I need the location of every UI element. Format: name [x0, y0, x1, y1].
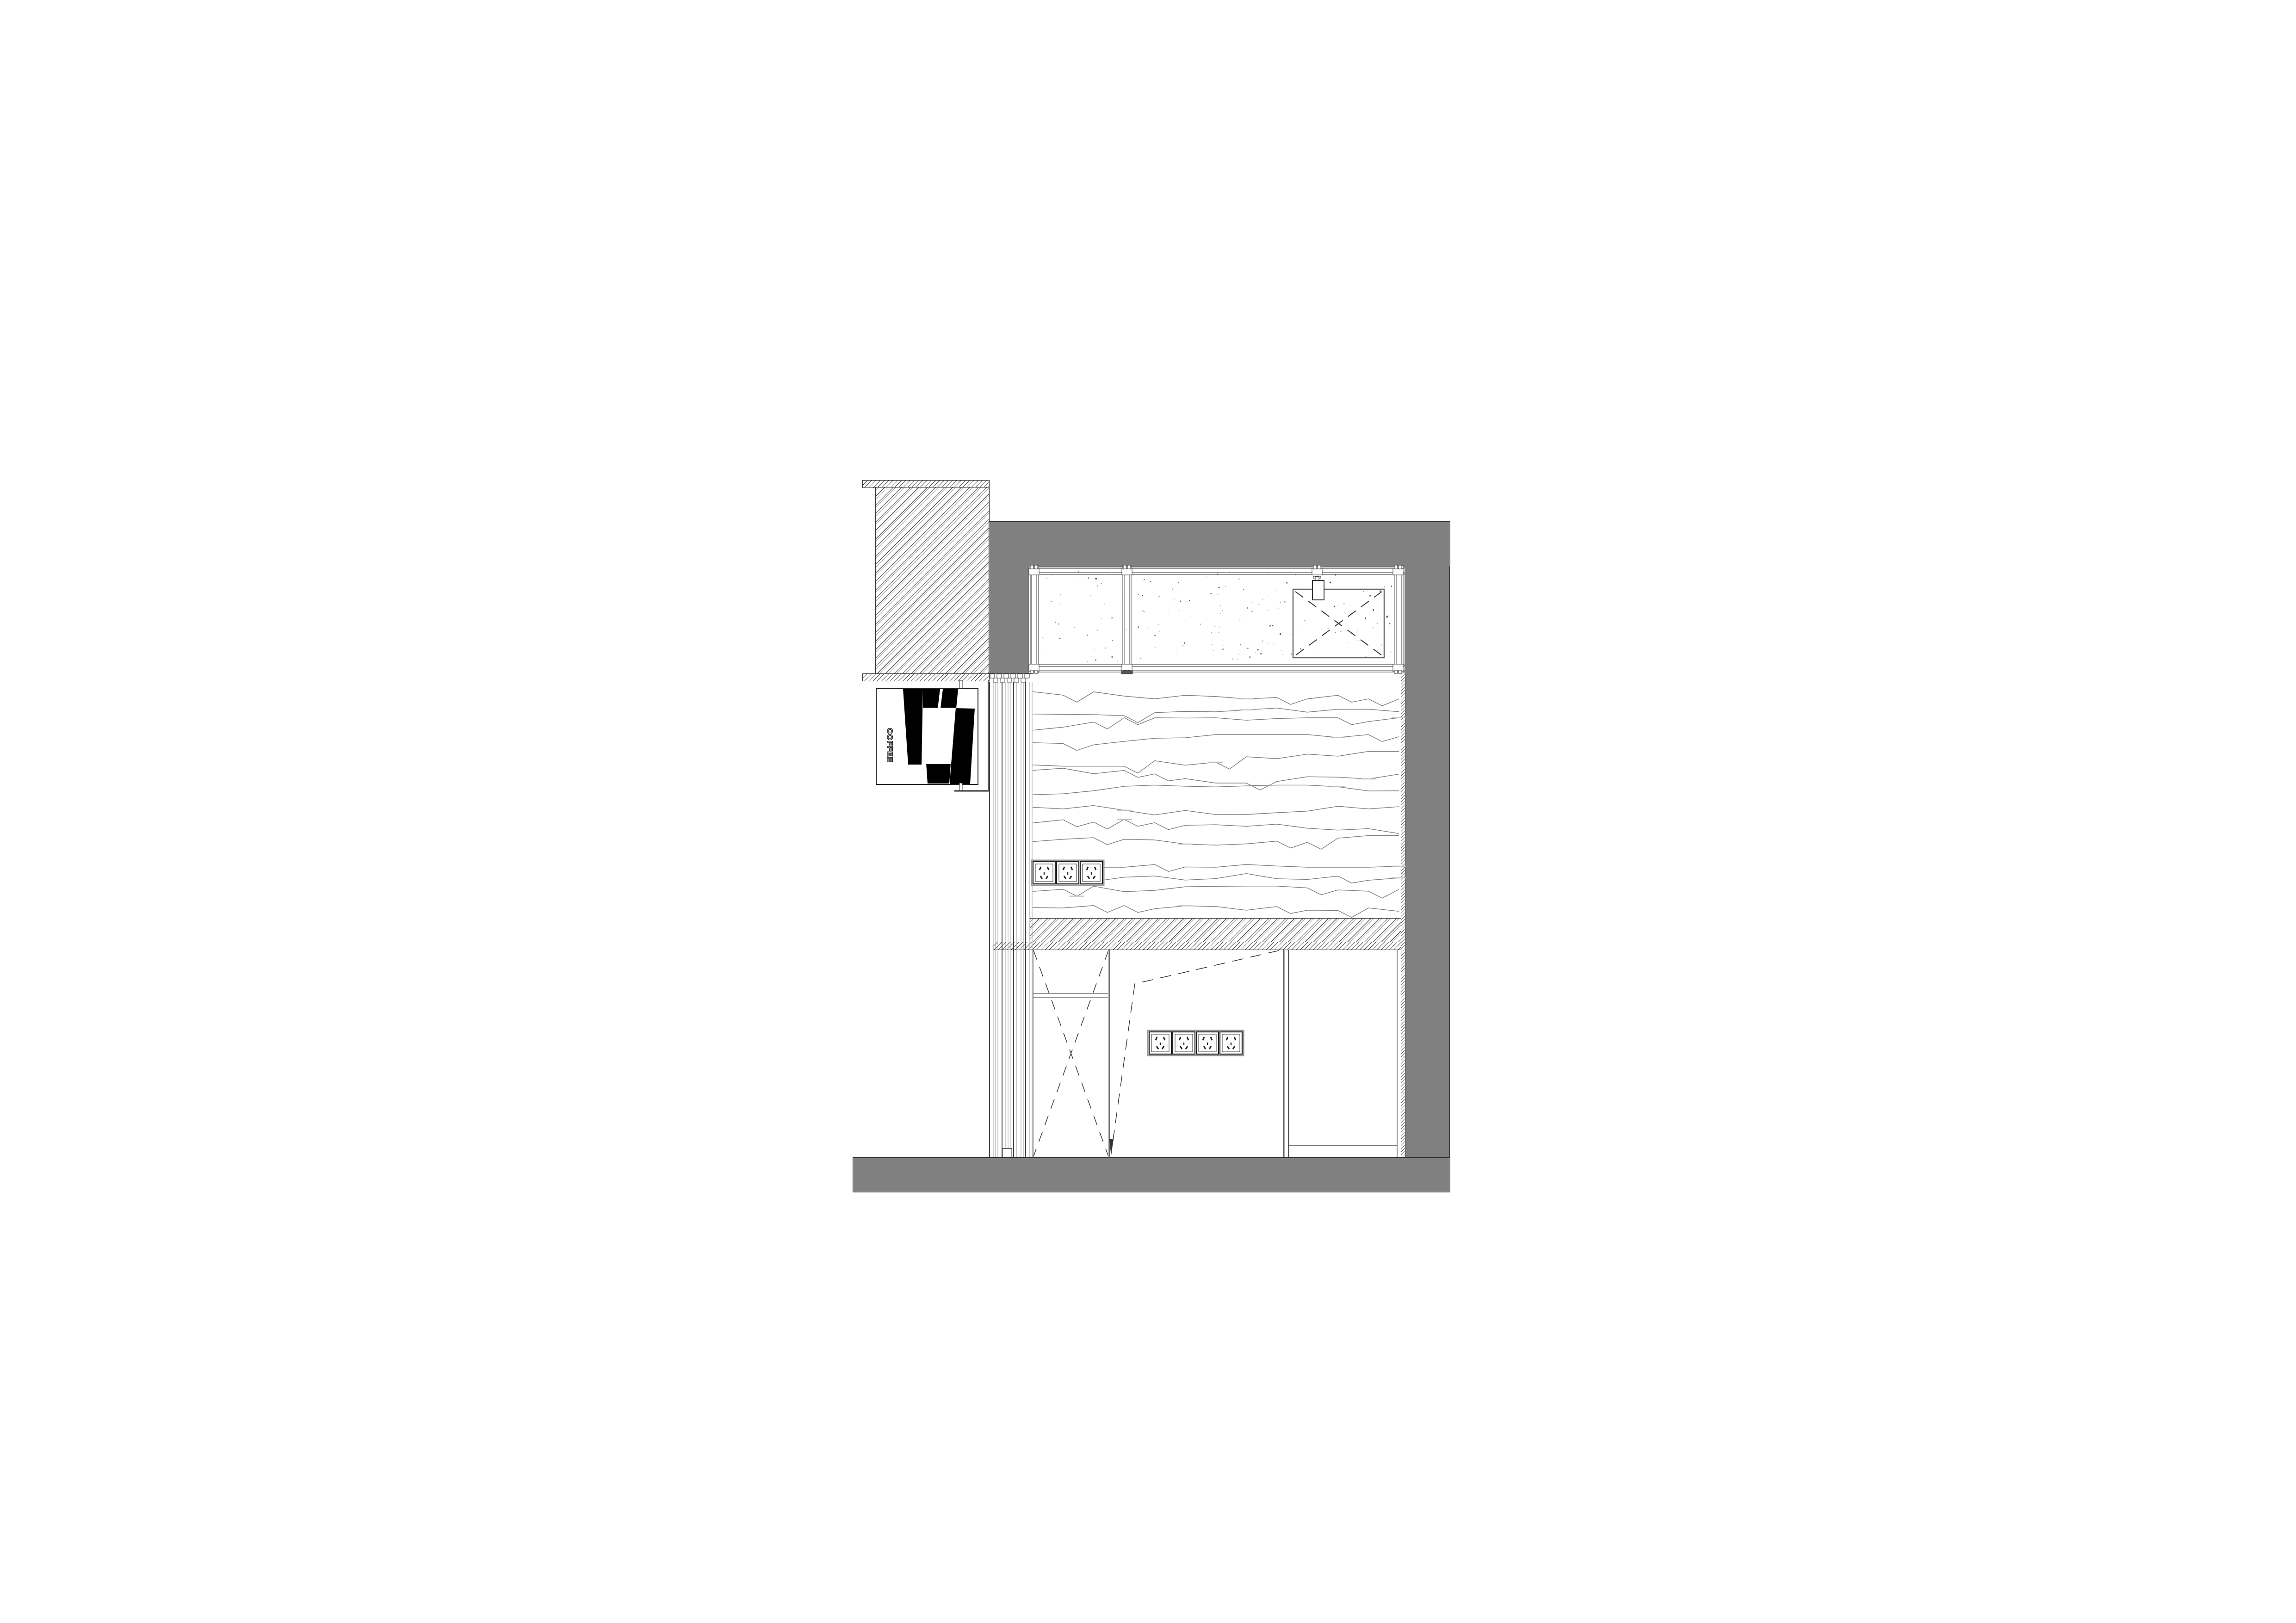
glass-speckle-texture: [1042, 570, 1392, 662]
transom-window: [1029, 565, 1404, 674]
linework-overlay: [0, 0, 2296, 1623]
counter-substrate-hatched: [993, 942, 1401, 950]
right-wall-section: [1405, 566, 1450, 1157]
concrete-beam: [989, 521, 1450, 567]
coffee-signboard: COFFEE: [876, 688, 978, 785]
slat-column: [990, 673, 1033, 1157]
elevation-drawing: COFFEE: [0, 0, 2296, 1623]
door-swing-arrow: [1109, 1139, 1114, 1155]
wave-wall-pattern: [1033, 691, 1406, 917]
column-body-hatched: [875, 487, 990, 674]
outlet-group-lower: [1148, 1031, 1244, 1055]
counter-band-hatched: [1030, 918, 1401, 943]
column-ledge-hatched: [862, 673, 990, 681]
hanging-duct: [1312, 576, 1324, 600]
coffee-sign-label: COFFEE: [885, 728, 894, 770]
left-pier: [989, 566, 1029, 673]
right-wall-finish-hatch: [1401, 674, 1405, 1157]
floor-slab: [853, 1157, 1450, 1192]
outlet-group-upper: [1032, 860, 1104, 885]
ceiling-access-panel: [1293, 589, 1384, 658]
lower-cabinets: [1033, 950, 1397, 1157]
